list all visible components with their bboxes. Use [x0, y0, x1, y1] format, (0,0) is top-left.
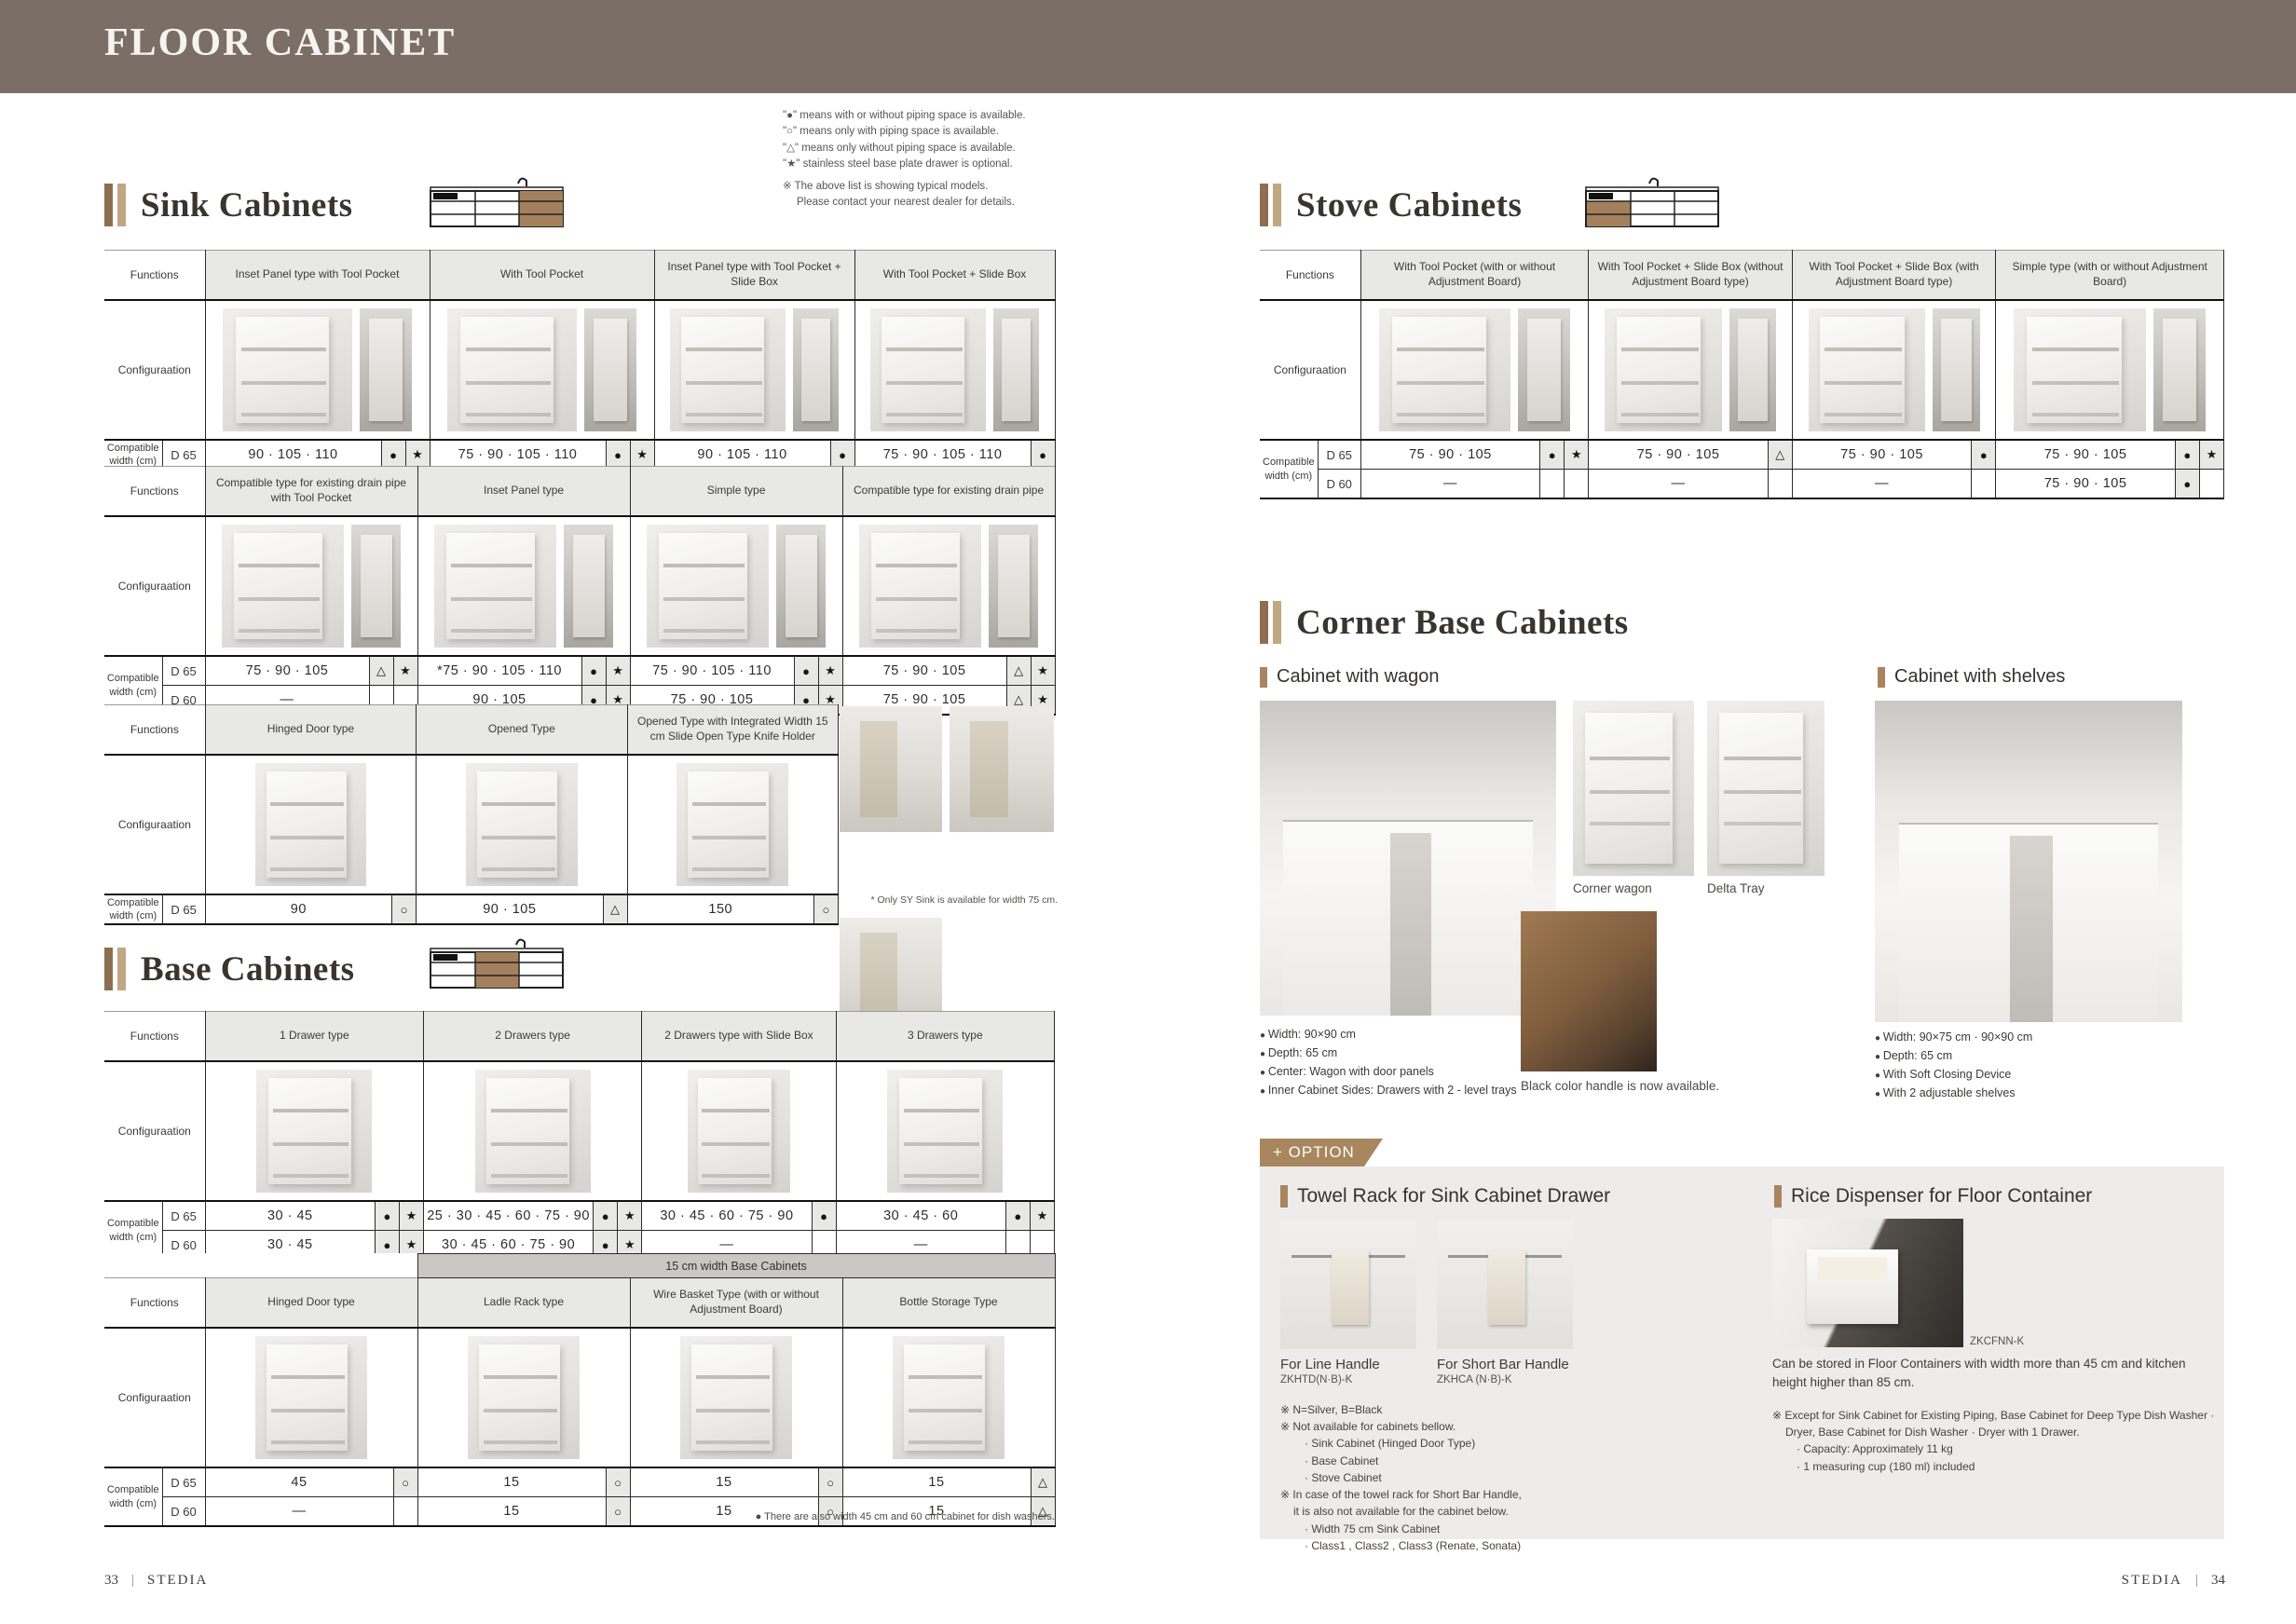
- configuration-photo-cell: [1360, 300, 1589, 440]
- availability-marker: ★: [1565, 440, 1589, 470]
- towel-code-1: ZKHTD(N·B)-K: [1280, 1374, 1416, 1385]
- base-cabinets-heading: Base Cabinets: [104, 943, 355, 995]
- width-value: 75 · 90 · 105: [1360, 440, 1539, 470]
- note-line: · Capacity: Approximately 11 kg: [1772, 1440, 2220, 1457]
- depth-label: D 65: [162, 894, 205, 924]
- spec-table: FunctionsCompatible type for existing dr…: [104, 466, 1056, 716]
- table-band-label: 15 cm width Base Cabinets: [417, 1254, 1055, 1278]
- cabinet-photo: [255, 763, 367, 886]
- depth-label: D 65: [162, 656, 205, 686]
- availability-marker: ●: [2175, 470, 2199, 499]
- availability-marker: ★: [2199, 440, 2223, 470]
- availability-marker: ○: [392, 894, 417, 924]
- configuration-photos: [210, 1068, 419, 1194]
- configuration-photos: [210, 761, 412, 888]
- width-value: 45: [205, 1467, 393, 1497]
- configuration-photo-cell: [642, 1061, 836, 1201]
- availability-marker: ★: [1031, 656, 1055, 686]
- configuration-photos: [646, 1068, 831, 1194]
- title-bar-dark: [104, 184, 113, 226]
- functions-header: Functions: [104, 705, 205, 756]
- cabinet-detail-photo: [351, 525, 401, 648]
- towel-figure-2: For Short Bar Handle ZKHCA (N·B)-K: [1437, 1221, 1573, 1385]
- cabinet-photo: [1605, 308, 1722, 431]
- stove-location-icon: [1582, 171, 1722, 230]
- corner-base-cabinets-heading: Corner Base Cabinets: [1260, 596, 1629, 648]
- configuration-photos: [422, 1334, 626, 1461]
- configuration-photos: [210, 523, 414, 649]
- base-table-2: 15 cm width Base CabinetsFunctionsHinged…: [104, 1253, 1056, 1527]
- cabinet-photo: [466, 763, 578, 886]
- configuration-photos: [847, 1334, 1051, 1461]
- sink-cabinets-title: Sink Cabinets: [141, 185, 353, 225]
- cabinet-detail-photo: [564, 525, 613, 648]
- page-header-bar: FLOOR CABINET: [0, 0, 2296, 93]
- column-header: Inset Panel type with Tool Pocket + Slid…: [654, 251, 854, 301]
- legend-lines: "●" means with or without piping space i…: [783, 108, 1072, 172]
- cabinet-with-wagon-title: Cabinet with wagon: [1277, 666, 1440, 688]
- width-value: 75 · 90 · 105: [205, 656, 369, 686]
- depth-label: D 65: [162, 1201, 205, 1231]
- rice-code: ZKCFNN-K: [1970, 1336, 2024, 1347]
- cabinet-detail-photo: [776, 525, 826, 648]
- configuration-label: Configuraation: [104, 1328, 205, 1467]
- spec-bullet: Center: Wagon with door panels: [1260, 1062, 1530, 1081]
- spec-bullet: Inner Cabinet Sides: Drawers with 2 - le…: [1260, 1081, 1530, 1099]
- configuration-photo-cell: [1589, 300, 1793, 440]
- base-note: ● There are also width 45 cm and 60 cm c…: [559, 1511, 1055, 1522]
- cabinet-photo: [859, 525, 981, 648]
- configuration-photos: [420, 761, 622, 888]
- brand-name: STEDIA: [2122, 1573, 2182, 1588]
- width-value: 75 · 90 · 105: [1996, 470, 2175, 499]
- configuration-photos: [210, 1334, 414, 1461]
- cabinet-photo: [222, 525, 344, 648]
- column-header: Opened Type with Integrated Width 15 cm …: [627, 705, 838, 756]
- rice-description: Can be stored in Floor Containers with w…: [1772, 1355, 2210, 1393]
- spec-bullet: With Soft Closing Device: [1875, 1065, 2182, 1084]
- depth-label: D 60: [162, 1497, 205, 1527]
- configuration-photo-cell: [417, 516, 630, 656]
- depth-label: D 65: [1318, 440, 1360, 470]
- column-header: 2 Drawers type: [423, 1012, 641, 1062]
- configuration-photos: [434, 307, 650, 433]
- cabinet-detail-photo: [1933, 308, 1979, 431]
- footer-left: 33|STEDIA: [104, 1573, 208, 1589]
- width-value: 75 · 90 · 105: [1792, 440, 1971, 470]
- page-title: FLOOR CABINET: [104, 20, 456, 65]
- configuration-photo-cell: [654, 300, 854, 440]
- sink-table-2: FunctionsCompatible type for existing dr…: [104, 466, 1056, 716]
- spec-table: FunctionsInset Panel type with Tool Pock…: [104, 250, 1056, 471]
- configuration-photo-cell: [630, 516, 842, 656]
- width-value: 90: [205, 894, 391, 924]
- towel-rack-title: Towel Rack for Sink Cabinet Drawer: [1297, 1185, 1610, 1208]
- towel-code-2: ZKHCA (N·B)-K: [1437, 1374, 1573, 1385]
- spec-table: 15 cm width Base CabinetsFunctionsHinged…: [104, 1253, 1056, 1527]
- black-handle-note: Black color handle is now available.: [1521, 1079, 1838, 1093]
- towel-short-bar-photo: [1437, 1221, 1573, 1349]
- spec-table: FunctionsHinged Door typeOpened TypeOpen…: [104, 704, 839, 925]
- functions-header: Functions: [104, 251, 205, 301]
- compatible-width-label: Compatible width (cm): [1260, 440, 1318, 498]
- towel-line-handle-photo: [1280, 1221, 1416, 1349]
- cabinet-detail-photo: [360, 308, 412, 431]
- configuration-photo-cell: [627, 755, 838, 894]
- availability-marker: △: [1031, 1467, 1055, 1497]
- column-header: With Tool Pocket: [430, 251, 654, 301]
- configuration-photos: [659, 307, 851, 433]
- cabinet-photo: [223, 308, 352, 431]
- base-cabinets-title: Base Cabinets: [141, 949, 355, 989]
- spec-bullet: Depth: 65 cm: [1875, 1046, 2182, 1065]
- legend-note: ※ The above list is showing typical mode…: [783, 179, 1072, 195]
- functions-header: Functions: [104, 1278, 205, 1329]
- subtitle-bar: [1878, 667, 1885, 688]
- configuration-photo-cell: [417, 1328, 630, 1467]
- cabinet-photo: [256, 1070, 372, 1193]
- depth-label: D 65: [162, 1467, 205, 1497]
- configuration-photo-cell: [205, 300, 430, 440]
- availability-marker-empty: [1565, 470, 1589, 499]
- width-value: 25 · 30 · 45 · 60 · 75 · 90: [423, 1201, 593, 1231]
- column-header: Simple type: [630, 467, 842, 517]
- column-header: With Tool Pocket (with or without Adjust…: [1360, 251, 1589, 301]
- cabinet-photo: [887, 1070, 1003, 1193]
- availability-marker: ★: [393, 656, 417, 686]
- width-value: 75 · 90 · 105: [1589, 440, 1768, 470]
- cabinet-with-shelves-heading: Cabinet with shelves: [1878, 666, 2065, 688]
- configuration-photo-cell: [417, 755, 627, 894]
- sink-cabinets-heading: Sink Cabinets: [104, 179, 353, 231]
- column-header: Hinged Door type: [205, 705, 416, 756]
- configuration-photos: [635, 523, 839, 649]
- cabinet-detail-photo: [793, 308, 839, 431]
- base-location-icon: [427, 932, 567, 991]
- width-value: —: [1792, 470, 1971, 499]
- towel-figure-1: For Line Handle ZKHTD(N·B)-K: [1280, 1221, 1416, 1385]
- configuration-photo-cell: [842, 1328, 1055, 1467]
- towel-caption-2: For Short Bar Handle: [1437, 1357, 1573, 1372]
- title-bar-light: [1273, 184, 1281, 226]
- cabinet-photo: [434, 525, 556, 648]
- note-line: · Class1 , Class2 , Class3 (Renate, Sona…: [1280, 1537, 1728, 1554]
- availability-marker-empty: [2199, 470, 2223, 499]
- width-value: *75 · 90 · 105 · 110: [417, 656, 581, 686]
- availability-marker-empty: [1972, 470, 1996, 499]
- cabinet-photo: [676, 763, 788, 886]
- availability-marker: ●: [375, 1201, 399, 1231]
- footer-right: STEDIA|34: [1864, 1573, 2225, 1589]
- title-bar-light: [117, 948, 126, 990]
- rice-notes: ※ Except for Sink Cabinet for Existing P…: [1772, 1407, 2220, 1475]
- column-header: Wire Basket Type (with or without Adjust…: [630, 1278, 842, 1329]
- cabinet-photo: [1379, 308, 1510, 431]
- subtitle-bar: [1280, 1185, 1288, 1208]
- availability-marker: ●: [1005, 1201, 1030, 1231]
- configuration-label: Configuraation: [1260, 300, 1360, 440]
- configuration-photo-cell: [630, 1328, 842, 1467]
- width-value: 75 · 90 · 105 · 110: [630, 656, 794, 686]
- configuration-photos: [635, 1334, 839, 1461]
- note-line: · Width 75 cm Sink Cabinet: [1280, 1521, 1728, 1537]
- configuration-photo-cell: [205, 516, 417, 656]
- column-header: Bottle Storage Type: [842, 1278, 1055, 1329]
- option-panel: Towel Rack for Sink Cabinet Drawer For L…: [1260, 1167, 2224, 1539]
- spec-bullet: With 2 adjustable shelves: [1875, 1084, 2182, 1102]
- legend-line: "○" means only with piping space is avai…: [783, 124, 1072, 140]
- band-spacer: [104, 1254, 417, 1278]
- availability-marker: ●: [1972, 440, 1996, 470]
- cabinet-detail-photo: [1518, 308, 1571, 431]
- note-line: it is also not available for the cabinet…: [1280, 1503, 1728, 1520]
- configuration-photo-cell: [423, 1061, 641, 1201]
- availability-marker: ●: [594, 1201, 618, 1231]
- availability-marker: ★: [618, 1201, 642, 1231]
- width-value: 75 · 90 · 105: [842, 656, 1006, 686]
- availability-marker: ○: [813, 894, 838, 924]
- availability-marker: ●: [581, 656, 606, 686]
- subtitle-bar: [1774, 1185, 1782, 1208]
- availability-marker: △: [369, 656, 393, 686]
- spec-table: Functions1 Drawer type2 Drawers type2 Dr…: [104, 1011, 1055, 1261]
- configuration-photo-cell: [205, 755, 416, 894]
- configuration-photo-cell: [205, 1328, 417, 1467]
- compatible-width-label: Compatible width (cm): [104, 1201, 162, 1260]
- column-header: Compatible type for existing drain pipe …: [205, 467, 417, 517]
- sink-usage-photo-2: [950, 706, 1054, 832]
- availability-marker: ★: [818, 656, 842, 686]
- availability-marker: ●: [2175, 440, 2199, 470]
- configuration-photos: [847, 523, 1051, 649]
- footer-separator: |: [2195, 1573, 2198, 1588]
- option-tab: + OPTION: [1260, 1139, 1383, 1167]
- column-header: Ladle Rack type: [417, 1278, 630, 1329]
- title-bar-dark: [1260, 184, 1268, 226]
- cabinet-detail-photo: [2153, 308, 2207, 431]
- cabinet-with-shelves-title: Cabinet with shelves: [1894, 666, 2065, 688]
- shelves-spec-list: Width: 90×75 cm · 90×90 cmDepth: 65 cmWi…: [1875, 1028, 2182, 1102]
- footer-separator: |: [131, 1573, 134, 1588]
- spec-bullet: Width: 90×90 cm: [1260, 1025, 1530, 1044]
- availability-marker: ●: [1540, 440, 1565, 470]
- cabinet-photo: [670, 308, 786, 431]
- sink-table-3: FunctionsHinged Door typeOpened TypeOpen…: [104, 704, 839, 925]
- cabinet-photo: [475, 1070, 591, 1193]
- availability-marker: ○: [818, 1467, 842, 1497]
- configuration-photo-cell: [205, 1061, 423, 1201]
- note-line: ※ N=Silver, B=Black: [1280, 1401, 1728, 1418]
- towel-caption-1: For Line Handle: [1280, 1357, 1416, 1372]
- availability-marker: ★: [399, 1201, 423, 1231]
- configuration-photo-cell: [842, 516, 1055, 656]
- legend-line: "△" means only without piping space is a…: [783, 141, 1072, 157]
- width-value: 75 · 90 · 105: [1996, 440, 2175, 470]
- spec-table: FunctionsWith Tool Pocket (with or witho…: [1260, 250, 2224, 499]
- configuration-photos: [428, 1068, 637, 1194]
- corner-wagon-main-photo: [1260, 701, 1556, 1016]
- sink-table-1: FunctionsInset Panel type with Tool Pock…: [104, 250, 1056, 471]
- compatible-width-label: Compatible width (cm): [104, 1467, 162, 1526]
- note-line: · Base Cabinet: [1280, 1453, 1728, 1469]
- spec-bullet: Depth: 65 cm: [1260, 1044, 1530, 1062]
- configuration-label: Configuraation: [104, 516, 205, 656]
- rice-dispenser-title: Rice Dispenser for Floor Container: [1791, 1185, 2092, 1208]
- column-header: With Tool Pocket + Slide Box (with Adjus…: [1792, 251, 1996, 301]
- legend-note-2: Please contact your nearest dealer for d…: [783, 195, 1072, 211]
- cabinet-photo: [2014, 308, 2145, 431]
- note-line: · Stove Cabinet: [1280, 1469, 1728, 1486]
- note-line: ※ Not available for cabinets bellow.: [1280, 1418, 1728, 1435]
- towel-notes: ※ N=Silver, B=Black※ Not available for c…: [1280, 1401, 1728, 1554]
- width-value: 30 · 45 · 60 · 75 · 90: [642, 1201, 812, 1231]
- configuration-photos: [859, 307, 1051, 433]
- spec-bullet: Width: 90×75 cm · 90×90 cm: [1875, 1028, 2182, 1046]
- rice-dispenser-photo: [1772, 1219, 1963, 1347]
- corner-wagon-photo: [1573, 701, 1694, 876]
- stove-cabinets-title: Stove Cabinets: [1296, 185, 1522, 225]
- cabinet-detail-photo: [584, 308, 636, 431]
- sink-location-icon: [427, 171, 567, 230]
- configuration-photos: [1797, 307, 1992, 433]
- availability-marker: ●: [812, 1201, 836, 1231]
- availability-marker: ★: [1030, 1201, 1054, 1231]
- configuration-photo-cell: [1792, 300, 1996, 440]
- functions-header: Functions: [1260, 251, 1360, 301]
- cabinet-photo: [1809, 308, 1926, 431]
- availability-marker: △: [1768, 440, 1792, 470]
- delta-tray-photo: [1707, 701, 1824, 876]
- wagon-spec-list: Width: 90×90 cmDepth: 65 cmCenter: Wagon…: [1260, 1025, 1530, 1099]
- corner-base-cabinets-title: Corner Base Cabinets: [1296, 603, 1629, 643]
- compatible-width-label: Compatible width (cm): [104, 894, 162, 924]
- width-value: 15: [630, 1467, 818, 1497]
- configuration-photos: [1592, 307, 1788, 433]
- configuration-photos: [210, 307, 426, 433]
- corner-wagon-caption: Corner wagon: [1573, 881, 1652, 895]
- rice-dispenser-heading: Rice Dispenser for Floor Container: [1774, 1185, 2092, 1208]
- configuration-photo-cell: [430, 300, 654, 440]
- symbol-legend: "●" means with or without piping space i…: [783, 108, 1072, 212]
- availability-marker: ●: [794, 656, 818, 686]
- availability-marker-empty: [1768, 470, 1792, 499]
- configuration-photos: [840, 1068, 1050, 1194]
- configuration-photos: [1365, 307, 1585, 433]
- functions-header: Functions: [104, 1012, 205, 1062]
- configuration-photo-cell: [836, 1061, 1054, 1201]
- cabinet-photo: [893, 1336, 1004, 1459]
- legend-line: "●" means with or without piping space i…: [783, 108, 1072, 124]
- cabinet-detail-photo: [1729, 308, 1776, 431]
- black-handle-photo: [1521, 911, 1657, 1071]
- towel-rack-heading: Towel Rack for Sink Cabinet Drawer: [1280, 1185, 1610, 1208]
- configuration-photo-cell: [1996, 300, 2224, 440]
- cabinet-photo: [468, 1336, 580, 1459]
- column-header: Inset Panel type: [417, 467, 630, 517]
- width-value: 150: [627, 894, 813, 924]
- width-value: 30 · 45 · 60: [836, 1201, 1005, 1231]
- stove-cabinets-heading: Stove Cabinets: [1260, 179, 1522, 231]
- availability-marker-empty: [1540, 470, 1565, 499]
- title-bar-dark: [1260, 601, 1268, 644]
- column-header: 2 Drawers type with Slide Box: [642, 1012, 836, 1062]
- availability-marker: △: [603, 894, 627, 924]
- column-header: With Tool Pocket + Slide Box (without Ad…: [1589, 251, 1793, 301]
- configuration-label: Configuraation: [104, 300, 205, 440]
- width-value: —: [1589, 470, 1768, 499]
- availability-marker: △: [1006, 656, 1031, 686]
- availability-marker: ★: [606, 656, 630, 686]
- configuration-label: Configuraation: [104, 1061, 205, 1201]
- cabinet-detail-photo: [993, 308, 1039, 431]
- page-number-left: 33: [104, 1573, 118, 1588]
- subtitle-bar: [1260, 667, 1267, 688]
- title-bar-light: [1273, 601, 1281, 644]
- availability-marker: ○: [393, 1467, 417, 1497]
- note-line: · 1 measuring cup (180 ml) included: [1772, 1458, 2220, 1475]
- cabinet-photo: [447, 308, 577, 431]
- delta-tray-caption: Delta Tray: [1707, 881, 1765, 895]
- functions-header: Functions: [104, 467, 205, 517]
- cabinet-photo: [870, 308, 986, 431]
- brand-name: STEDIA: [147, 1573, 208, 1588]
- availability-marker-empty: [393, 1497, 417, 1527]
- availability-marker: ○: [606, 1467, 630, 1497]
- depth-label: D 60: [1318, 470, 1360, 499]
- configuration-photos: [2000, 307, 2220, 433]
- legend-line: "★" stainless steel base plate drawer is…: [783, 157, 1072, 172]
- width-value: —: [1360, 470, 1539, 499]
- note-line: · Sink Cabinet (Hinged Door Type): [1280, 1435, 1728, 1452]
- stove-table: FunctionsWith Tool Pocket (with or witho…: [1260, 250, 2224, 499]
- column-header: 3 Drawers type: [836, 1012, 1054, 1062]
- title-bar-light: [117, 184, 126, 226]
- width-value: 30 · 45: [205, 1201, 375, 1231]
- width-value: 15: [842, 1467, 1031, 1497]
- configuration-photos: [632, 761, 834, 888]
- cabinet-photo: [680, 1336, 792, 1459]
- title-bar-dark: [104, 948, 113, 990]
- cabinet-photo: [255, 1336, 367, 1459]
- column-header: Compatible type for existing drain pipe: [842, 467, 1055, 517]
- column-header: Inset Panel type with Tool Pocket: [205, 251, 430, 301]
- configuration-photos: [422, 523, 626, 649]
- note-line: ※ In case of the towel rack for Short Ba…: [1280, 1486, 1728, 1503]
- sink-usage-photo-1: [840, 706, 942, 832]
- corner-shelves-photo: [1875, 701, 2182, 1022]
- column-header: Hinged Door type: [205, 1278, 417, 1329]
- column-header: With Tool Pocket + Slide Box: [854, 251, 1055, 301]
- sink-note: * Only SY Sink is available for width 75…: [843, 894, 1058, 906]
- cabinet-photo: [688, 1070, 790, 1193]
- catalog-page: FLOOR CABINET "●" means with or without …: [0, 0, 2296, 1624]
- cabinet-photo: [647, 525, 769, 648]
- page-number-right: 34: [2211, 1573, 2225, 1588]
- width-value: 90 · 105: [417, 894, 603, 924]
- note-line: ※ Except for Sink Cabinet for Existing P…: [1772, 1407, 2220, 1440]
- column-header: 1 Drawer type: [205, 1012, 423, 1062]
- configuration-photo-cell: [854, 300, 1055, 440]
- cabinet-detail-photo: [989, 525, 1038, 648]
- column-header: Simple type (with or without Adjustment …: [1996, 251, 2224, 301]
- base-table-1: Functions1 Drawer type2 Drawers type2 Dr…: [104, 1011, 1055, 1261]
- column-header: Opened Type: [417, 705, 627, 756]
- width-value: 15: [417, 1467, 606, 1497]
- cabinet-with-wagon-heading: Cabinet with wagon: [1260, 666, 1440, 688]
- configuration-label: Configuraation: [104, 755, 205, 894]
- width-value: —: [205, 1497, 393, 1527]
